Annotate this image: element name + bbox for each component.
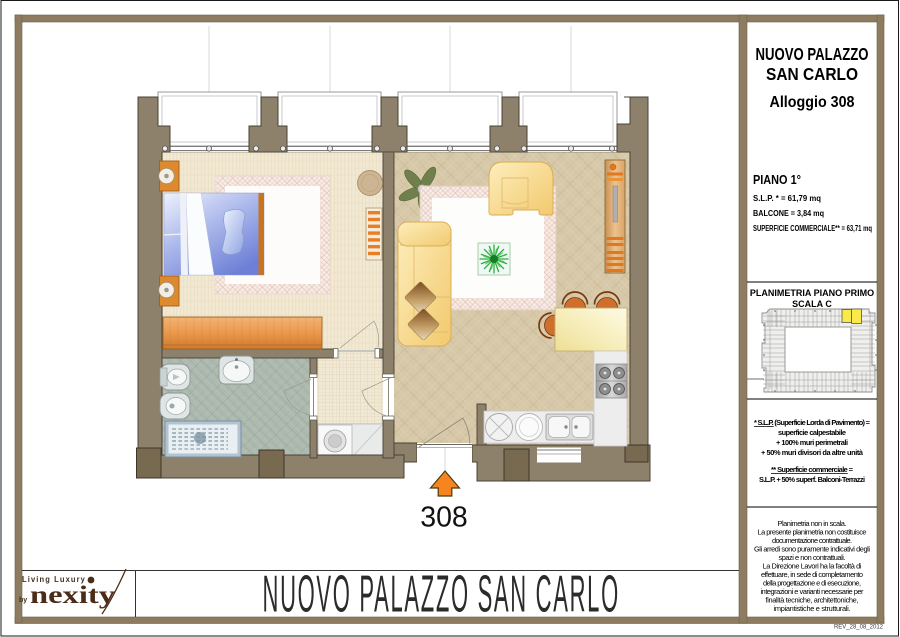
svg-text:superficie calpestabile: superficie calpestabile	[778, 428, 846, 437]
svg-text:SUPERFICIE COMMERCIALE** = 63,: SUPERFICIE COMMERCIALE** = 63,71 mq	[753, 224, 872, 233]
svg-text:SCALA C: SCALA C	[792, 299, 832, 309]
svg-text:* S.L.P. (Superficie Lorda di: * S.L.P. (Superficie Lorda di Pavimento)…	[754, 418, 871, 427]
svg-text:** Superficie commerciale =: ** Superficie commerciale =	[771, 465, 854, 474]
svg-text:PIANO 1°: PIANO 1°	[753, 173, 801, 187]
svg-text:308: 308	[420, 502, 468, 534]
svg-text:BALCONE = 3,84 mq: BALCONE = 3,84 mq	[753, 209, 824, 218]
svg-text:by: by	[19, 597, 27, 604]
svg-text:PLANIMETRIA PIANO PRIMO: PLANIMETRIA PIANO PRIMO	[750, 288, 874, 298]
svg-text:NUOVO PALAZZO SAN CARLO: NUOVO PALAZZO SAN CARLO	[263, 566, 620, 623]
svg-text:nexity: nexity	[30, 580, 115, 609]
svg-text:Alloggio 308: Alloggio 308	[770, 94, 855, 111]
svg-text:+ 50% muri divisori da altre u: + 50% muri divisori da altre unità	[761, 448, 864, 457]
svg-text:S.L.P. + 50% superf. Balconi-T: S.L.P. + 50% superf. Balconi-Terrazzi	[759, 475, 865, 484]
svg-text:S.L.P. * = 61,79 mq: S.L.P. * = 61,79 mq	[753, 194, 821, 203]
svg-text:NUOVO PALAZZO: NUOVO PALAZZO	[756, 44, 869, 64]
svg-text:+ 100% muri perimetrali: + 100% muri perimetrali	[776, 438, 848, 447]
svg-text:impiantistiche e strutturali.: impiantistiche e strutturali.	[774, 604, 851, 613]
svg-text:SAN CARLO: SAN CARLO	[766, 64, 858, 84]
svg-text:REV_28_08_2012: REV_28_08_2012	[834, 625, 884, 631]
